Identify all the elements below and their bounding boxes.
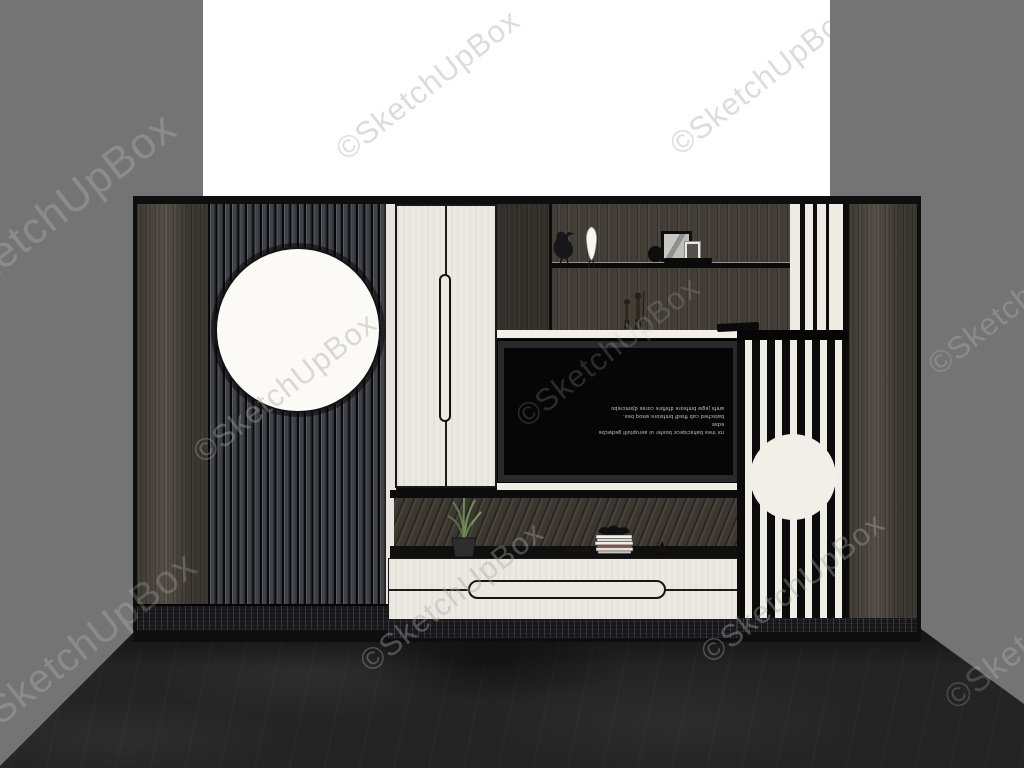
sunglasses	[567, 545, 591, 555]
cone-ornament	[654, 540, 670, 556]
black-stripe	[826, 204, 829, 330]
shelf-shadow-band	[737, 330, 849, 340]
wardrobe-doors	[395, 204, 497, 488]
moon-circle-left	[215, 247, 381, 413]
plinth-center	[388, 620, 740, 638]
tv-screen-text: roi ines bahsciqece bosfer ui aeruptuill…	[594, 410, 724, 436]
right-wood-panel	[849, 204, 917, 618]
shelf-left-compartment	[497, 204, 552, 330]
black-stripe	[800, 204, 805, 330]
upper-shelf-unit	[497, 204, 790, 330]
magazine-stack	[590, 522, 638, 556]
plinth-right	[737, 618, 917, 632]
left-slat-panel	[208, 204, 385, 612]
potted-plant	[443, 496, 485, 558]
tv-screen: roi ines bahsciqece bosfer ui aeruptuill…	[504, 348, 733, 475]
photo-small	[687, 244, 698, 259]
tv-text-line: amfs jegw bmfsore dfsfbre corse djsmcreb…	[594, 404, 724, 412]
tv-console-top	[497, 330, 737, 340]
bird-figurine	[552, 228, 580, 264]
drawer-front	[388, 558, 740, 620]
white-bird-figurine	[583, 226, 600, 267]
moon-circle-right	[750, 434, 836, 520]
wooden-figurines	[618, 290, 650, 330]
television: roi ines bahsciqece bosfer ui aeruptuill…	[497, 340, 739, 483]
striped-door	[737, 340, 849, 618]
sketchup-render-page: { "watermark": { "text": "©SketchUpBox",…	[0, 0, 1024, 768]
drawer-handle	[468, 580, 666, 599]
plinth-left	[137, 604, 388, 630]
frame-tray	[664, 258, 712, 263]
black-stripe	[813, 204, 817, 330]
tv-camera-icon	[610, 343, 628, 347]
door-handle	[439, 274, 451, 422]
tv-text-line: batsched cab fhsdf bmfsiore wsoq bes.	[594, 412, 724, 420]
striped-panel-top	[790, 204, 846, 330]
decor-bowl	[598, 526, 630, 536]
white-backdrop	[203, 0, 830, 197]
tv-text-line: roi ines bahsciqece bosfer ui aeruptuill…	[594, 420, 724, 436]
left-wood-panel	[137, 204, 208, 608]
tv-wall-unit: roi ines bahsciqece bosfer ui aeruptuill…	[133, 196, 921, 642]
